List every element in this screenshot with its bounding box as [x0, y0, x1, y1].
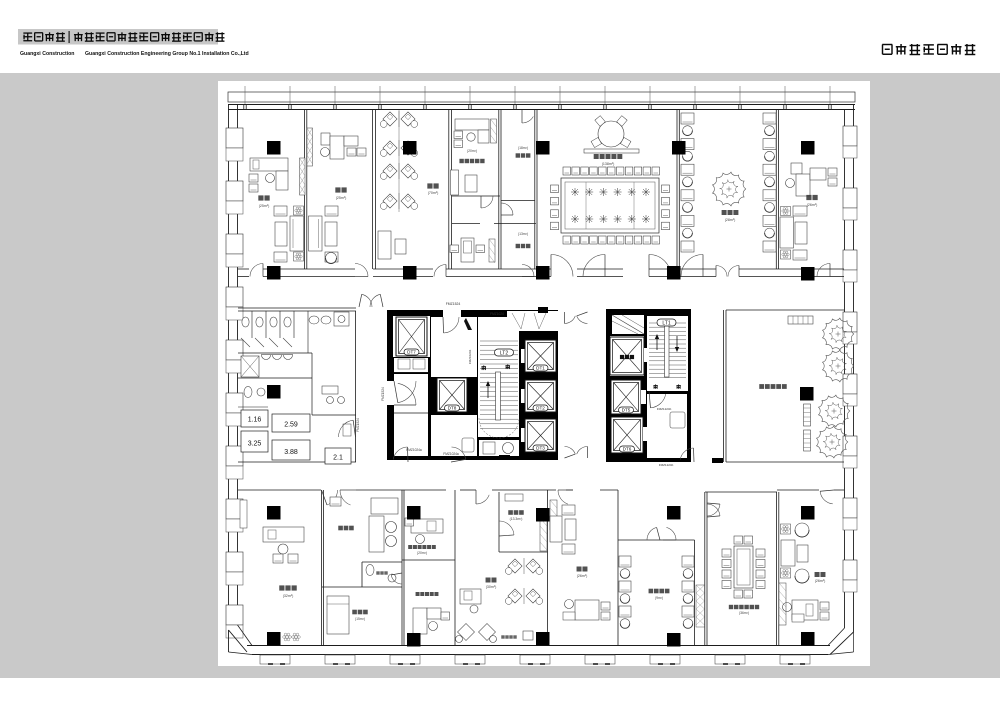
svg-text:FMZ1024: FMZ1024 — [490, 312, 504, 316]
svg-text:(25m²): (25m²) — [336, 196, 347, 200]
svg-text:Guangxi Construction: Guangxi Construction — [20, 51, 74, 57]
svg-text:DT2: DT2 — [536, 406, 545, 411]
svg-text:(13m²): (13m²) — [518, 232, 528, 236]
svg-text:DT3: DT3 — [536, 446, 545, 451]
svg-text:(26m²): (26m²) — [807, 203, 818, 207]
svg-text:DT6: DT6 — [623, 447, 632, 452]
svg-text:FMZ1024a: FMZ1024a — [406, 448, 422, 452]
svg-text:FMZ1224b: FMZ1224b — [657, 407, 672, 411]
svg-text:(30m²): (30m²) — [486, 585, 497, 589]
svg-text:FMZ1524: FMZ1524 — [381, 387, 385, 401]
svg-text:2.59: 2.59 — [284, 422, 298, 429]
svg-text:(13.3m²): (13.3m²) — [510, 517, 523, 521]
svg-text:FMZ1524: FMZ1524 — [356, 418, 360, 432]
svg-text:(18m²): (18m²) — [518, 146, 528, 150]
svg-text:FMZ1524: FMZ1524 — [446, 302, 461, 306]
svg-text:(20m²): (20m²) — [467, 149, 477, 153]
svg-text:2.1: 2.1 — [333, 455, 343, 462]
svg-text:DT7: DT7 — [407, 350, 416, 355]
svg-text:(28m²): (28m²) — [725, 218, 736, 222]
svg-text:(26m²): (26m²) — [815, 579, 826, 583]
svg-text:3.88: 3.88 — [284, 449, 298, 456]
svg-text:LT1: LT1 — [662, 320, 670, 326]
svg-text:FMZ1024b: FMZ1024b — [468, 349, 472, 364]
svg-text:(15m²): (15m²) — [355, 617, 365, 621]
svg-text:3.25: 3.25 — [248, 441, 262, 448]
svg-text:1.16: 1.16 — [248, 417, 262, 424]
svg-text:(26m²): (26m²) — [577, 574, 588, 578]
svg-text:DT1: DT1 — [536, 366, 545, 371]
svg-text:(138m²): (138m²) — [602, 162, 615, 166]
svg-text:Guangxi Construction Engineeri: Guangxi Construction Engineering Group N… — [85, 51, 249, 57]
svg-text:LT2: LT2 — [500, 350, 508, 356]
svg-text:DT8: DT8 — [448, 406, 457, 411]
svg-text:(70m²): (70m²) — [428, 191, 439, 195]
svg-text:DT5: DT5 — [622, 408, 631, 413]
svg-text:(20m²): (20m²) — [417, 551, 427, 555]
svg-text:(36m²): (36m²) — [739, 611, 749, 615]
svg-text:FMZ1224b: FMZ1224b — [659, 463, 674, 467]
svg-text:(9m²): (9m²) — [655, 596, 663, 600]
svg-text:(25m²): (25m²) — [259, 204, 270, 208]
svg-text:(32m²): (32m²) — [283, 594, 294, 598]
svg-text:FMZ1024a: FMZ1024a — [443, 452, 459, 456]
